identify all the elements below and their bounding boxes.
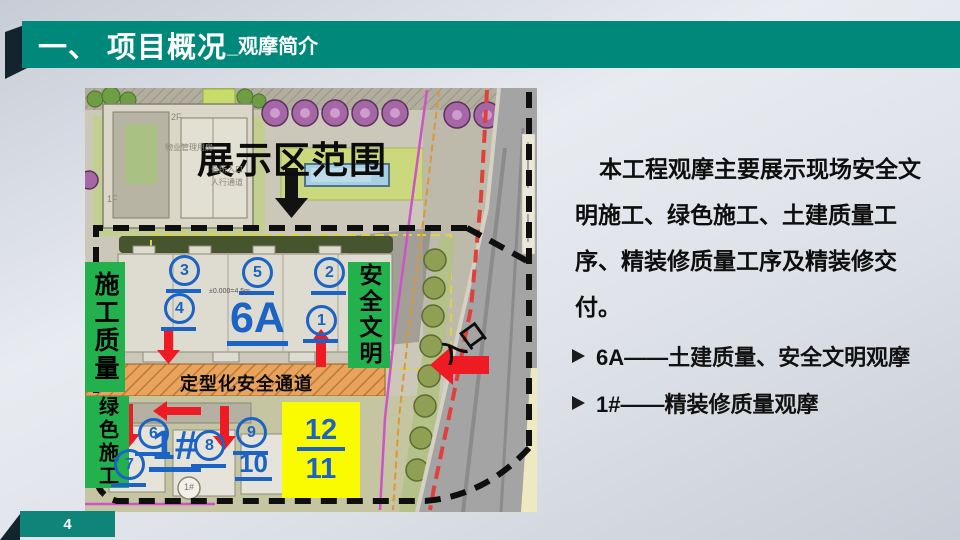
bullet-item-1: 1#——精装修质量观摩 <box>572 387 818 419</box>
plan-text-elevation: ±0.000=4.5m <box>209 288 250 295</box>
paragraph-line: 明施工、绿色施工、土建质量工 <box>575 192 927 238</box>
plan-text-1f: 1F <box>107 194 118 204</box>
label-safety-channel: 定型化安全通道 <box>180 370 313 396</box>
bullet-arrow-icon <box>572 349 585 363</box>
page-number: 4 <box>20 511 115 537</box>
building-12-label: 12 <box>297 415 345 451</box>
marker-7: 7 <box>114 449 145 480</box>
marker-6: 6 <box>138 418 169 449</box>
paragraph-line: 序、精装修质量工序及精装修交 <box>575 238 927 284</box>
bullet-item-6a: 6A——土建质量、安全文明观摩 <box>572 340 910 372</box>
label-safety-civilization: 安全文明 <box>348 262 390 368</box>
plan-text-property-mgmt: 物业管理用房 <box>165 142 213 153</box>
building-6a-label: 6A <box>227 296 288 346</box>
marker-3: 3 <box>169 255 200 286</box>
plan-text-2f: 2F <box>171 112 182 122</box>
courtyard <box>125 124 157 184</box>
paragraph-line: 付。 <box>575 284 927 330</box>
intro-paragraph: 本工程观摩主要展示现场安全文 明施工、绿色施工、土建质量工 序、精装修质量工序及… <box>575 146 927 330</box>
marker-1: 1 <box>306 305 337 336</box>
marker-4: 4 <box>164 293 195 324</box>
marker-2: 2 <box>314 257 345 288</box>
site-plan-map: 展示区范围 施工质量 绿色施工 安全文明 定型化安全通道 6A 1# 10 12… <box>85 88 537 512</box>
bullet-text: 6A——土建质量、安全文明观摩 <box>596 340 910 372</box>
plan-text-building-1-circle: 1# <box>179 482 199 492</box>
buildings-12-11-box: 12 11 <box>282 402 360 498</box>
paragraph-line: 本工程观摩主要展示现场安全文 <box>575 146 927 192</box>
slide-title: 一、 项目概况_观摩简介 <box>38 21 318 68</box>
slide-title-sub: _观摩简介 <box>227 30 318 59</box>
slide-title-main: 一、 项目概况 <box>38 24 227 66</box>
bullet-text: 1#——精装修质量观摩 <box>596 387 818 419</box>
display-area-banner: 展示区范围 <box>197 130 387 184</box>
building-11-label: 11 <box>306 454 337 486</box>
bullet-arrow-icon <box>572 396 585 410</box>
page-number-fold-decoration <box>0 514 20 540</box>
marker-9: 9 <box>236 417 267 448</box>
plan-text-club-entrance: 会所入口 <box>211 164 243 175</box>
marker-5: 5 <box>242 257 273 288</box>
label-construction-quality: 施工质量 <box>85 262 125 392</box>
marker-8: 8 <box>194 430 225 461</box>
plan-text-pedestrian-walk: 人行通道 <box>211 177 243 188</box>
